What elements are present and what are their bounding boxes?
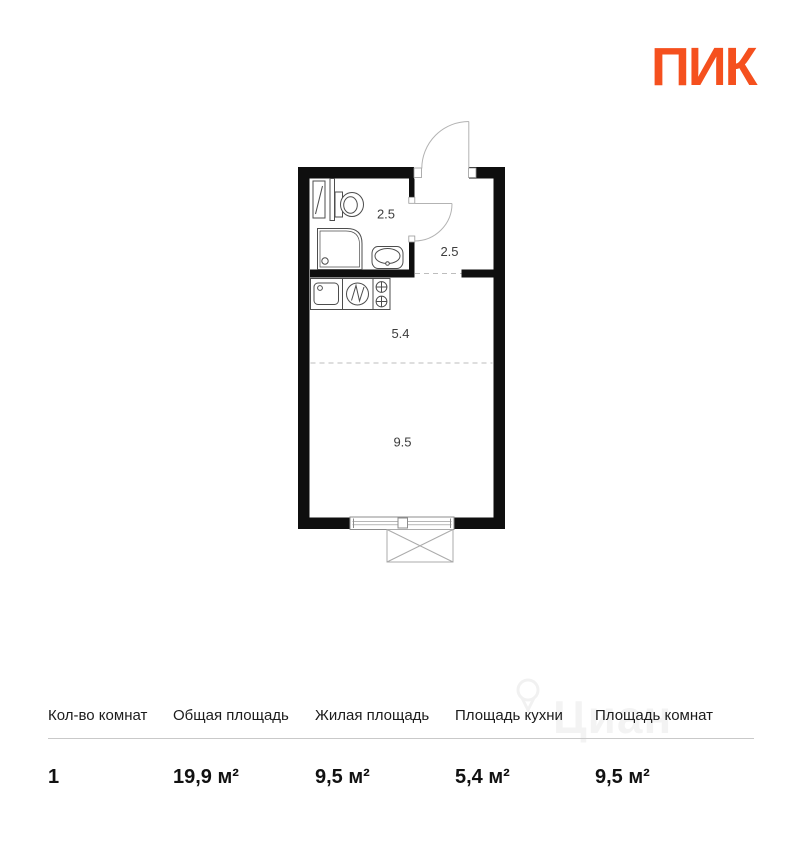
entrance-door-swing-arc: [422, 122, 469, 169]
floor-plan: 2.5 2.5 5.4 9.5: [0, 0, 800, 640]
bathroom-fixtures: [313, 179, 403, 270]
kitchen-sink-icon: [314, 283, 339, 305]
col-header-total-area: Общая площадь: [173, 706, 315, 725]
entrance-door: [422, 122, 469, 169]
bathroom-door-swing-arc: [415, 204, 453, 242]
shower-icon: [318, 229, 363, 270]
value-kitchen-area: 5,4 м²: [455, 765, 595, 789]
summary-table: Кол-во комнат Общая площадь Жилая площад…: [48, 706, 754, 789]
bathroom-partition: [330, 179, 335, 221]
kitchen-fixtures: [311, 279, 391, 310]
col-header-living-area: Жилая площадь: [315, 706, 455, 725]
table-divider: [48, 738, 754, 739]
col-header-rooms-area: Площадь комнат: [595, 706, 754, 725]
col-header-kitchen-area: Площадь кухни: [455, 706, 595, 725]
value-rooms-count: 1: [48, 765, 173, 789]
room-labels: 2.5 2.5 5.4 9.5: [377, 207, 459, 450]
window: [350, 517, 454, 530]
hallway-area-label: 2.5: [440, 244, 458, 259]
bathroom-area-label: 2.5: [377, 207, 395, 222]
bathroom-sink-icon: [372, 247, 403, 269]
col-header-rooms-count: Кол-во комнат: [48, 706, 173, 725]
value-living-area: 9,5 м²: [315, 765, 455, 789]
door-jambs: [409, 168, 476, 242]
stove-icon: [347, 283, 369, 305]
kitchen-area-label: 5.4: [391, 326, 409, 341]
value-rooms-area: 9,5 м²: [595, 765, 754, 789]
table-header-row: Кол-во комнат Общая площадь Жилая площад…: [48, 706, 754, 725]
walls: [298, 167, 505, 529]
toilet-icon: [335, 192, 364, 217]
table-values-row: 1 19,9 м² 9,5 м² 5,4 м² 9,5 м²: [48, 765, 754, 789]
listing-image: ПИК Циан: [0, 0, 800, 850]
value-total-area: 19,9 м²: [173, 765, 315, 789]
towel-radiator-icon: [313, 181, 325, 218]
living-room-area-label: 9.5: [393, 435, 411, 450]
bathroom-door: [415, 204, 453, 242]
balcony: [387, 530, 453, 563]
